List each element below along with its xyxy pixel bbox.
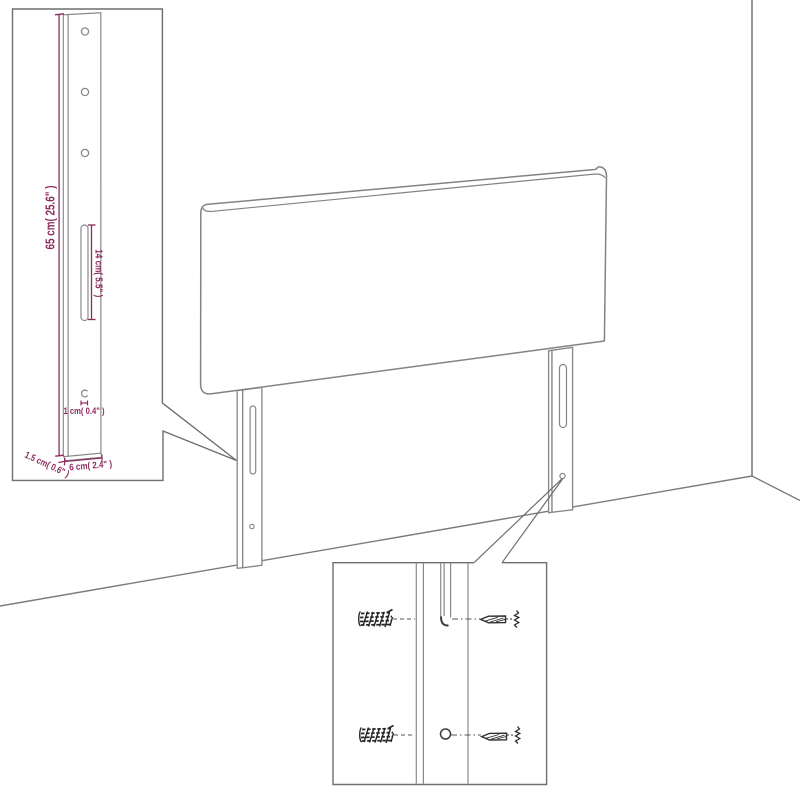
svg-text:65 cm( 25.6" ): 65 cm( 25.6" ) [44,186,58,250]
svg-text:1 cm( 0.4" ): 1 cm( 0.4" ) [64,406,105,417]
svg-text:14 cm( 5.5" ): 14 cm( 5.5" ) [93,249,105,297]
